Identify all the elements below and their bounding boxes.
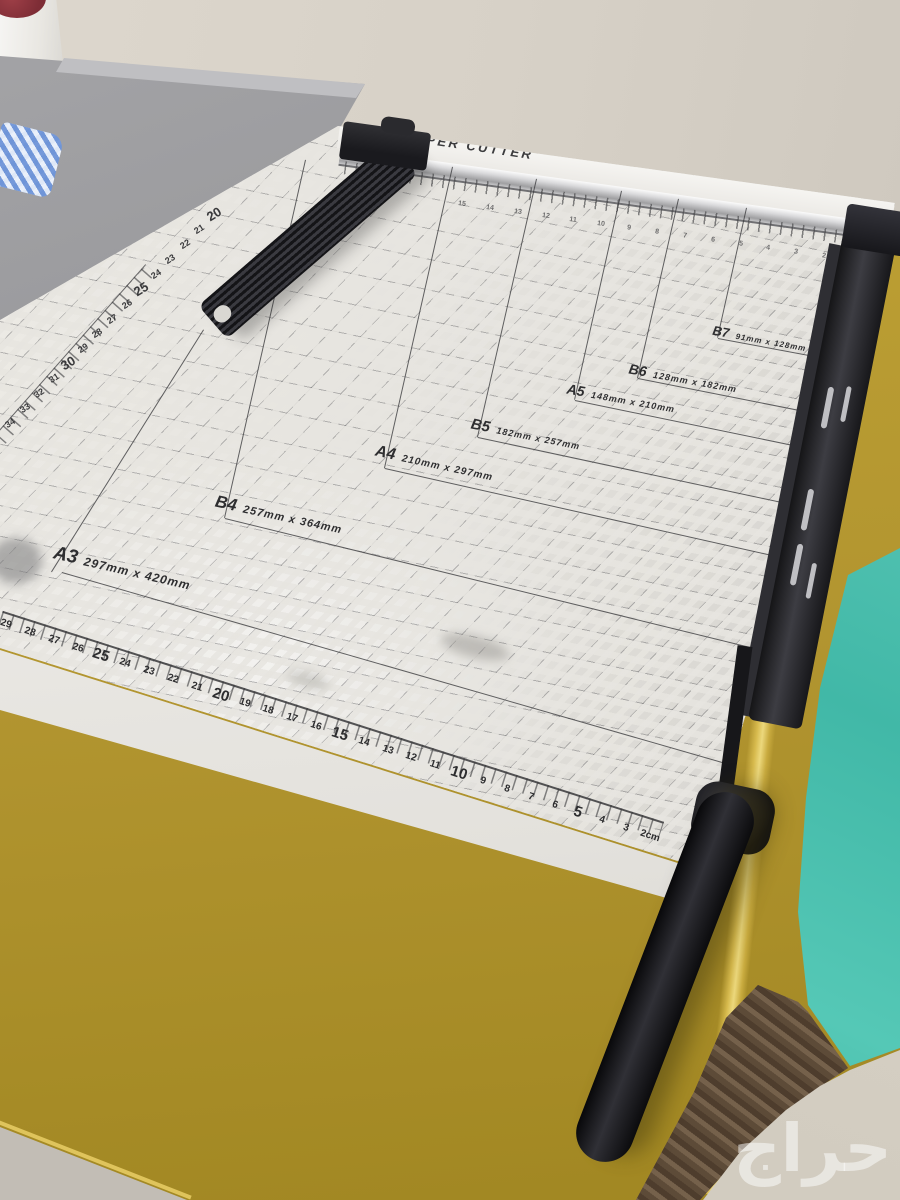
ruler-number-bottom: 21 bbox=[190, 680, 204, 694]
ruler-number-top: 10 bbox=[597, 220, 606, 228]
ruler-number-bottom: 3 bbox=[622, 822, 631, 834]
size-boundary-vline bbox=[477, 179, 537, 437]
ruler-number-left: 22 bbox=[178, 237, 192, 251]
ruler-number-bottom: 27 bbox=[47, 633, 61, 647]
size-dims: 182mm x 257mm bbox=[496, 425, 581, 451]
ruler-number-left: 33 bbox=[18, 401, 32, 415]
size-boundary-vline bbox=[224, 160, 306, 518]
haraj-watermark: حراج bbox=[618, 1116, 892, 1182]
ruler-number-top: 12 bbox=[541, 212, 550, 220]
ruler-number-left: 23 bbox=[163, 252, 177, 266]
ruler-number-bottom: 26 bbox=[71, 641, 85, 655]
ruler-number-bottom: 6 bbox=[550, 798, 559, 810]
ruler-number-top: 11 bbox=[569, 216, 577, 224]
size-dims: 148mm x 210mm bbox=[590, 390, 676, 415]
ruler-number-left: 24 bbox=[149, 267, 163, 281]
ruler-number-bottom: 17 bbox=[285, 711, 299, 725]
rail-slot bbox=[800, 489, 814, 531]
ruler-number-left: 27 bbox=[105, 312, 119, 326]
ruler-number-top: 14 bbox=[485, 204, 494, 212]
ruler-number-bottom: 13 bbox=[381, 743, 395, 757]
rail-slot bbox=[820, 386, 834, 428]
rail-slot bbox=[840, 386, 852, 422]
size-boundary-vline bbox=[384, 167, 453, 468]
size-dims: 128mm x 182mm bbox=[652, 370, 738, 395]
ruler-number-bottom: 5 bbox=[572, 803, 585, 822]
ruler-number-top: 5 bbox=[738, 240, 743, 247]
ruler-number-left: 32 bbox=[32, 386, 46, 400]
ruler-number-bottom: 8 bbox=[503, 783, 512, 795]
size-code: B4 bbox=[214, 492, 239, 515]
paper-size-label: A5148mm x 210mm bbox=[565, 381, 676, 418]
ruler-number-top: 4 bbox=[766, 244, 771, 251]
ruler-number-top: 8 bbox=[655, 228, 660, 235]
ruler-number-left: 34 bbox=[3, 416, 17, 430]
ruler-number-bottom: 15 bbox=[329, 723, 350, 744]
ruler-number-bottom: 29 bbox=[0, 617, 13, 631]
paper-size-label: A3297mm x 420mm bbox=[51, 542, 193, 595]
ruler-number-left: 31 bbox=[47, 371, 61, 385]
size-code: A5 bbox=[566, 381, 586, 400]
ruler-number-left: 26 bbox=[120, 297, 134, 311]
ruler-number-bottom: 12 bbox=[404, 751, 418, 765]
photo-canvas: PAPER CUTTER B791mm x 128mmB6128mm x 182… bbox=[0, 0, 900, 1200]
ruler-number-left: 30 bbox=[58, 353, 78, 373]
paper-size-label: B6128mm x 182mm bbox=[627, 361, 738, 398]
size-code: A4 bbox=[374, 443, 398, 464]
ruler-number-bottom: 16 bbox=[309, 719, 323, 733]
size-boundary-vline bbox=[717, 208, 747, 338]
ruler-number-left: 29 bbox=[76, 341, 90, 355]
ruler-number-top: 6 bbox=[710, 236, 715, 243]
size-code: A3 bbox=[52, 542, 80, 568]
rail-slot bbox=[790, 543, 804, 585]
ruler-number-bottom: 18 bbox=[261, 703, 275, 717]
ruler-number-bottom: 7 bbox=[526, 791, 535, 803]
ruler-number-bottom: 25 bbox=[91, 645, 112, 666]
clamp-bar-notch bbox=[210, 302, 234, 326]
ruler-number-top: 13 bbox=[513, 208, 522, 216]
ruler-number-top: 15 bbox=[458, 200, 467, 208]
rail-slot bbox=[805, 563, 817, 599]
size-code: B6 bbox=[628, 361, 648, 380]
size-boundary-hline bbox=[225, 518, 791, 658]
ruler-number-left: 20 bbox=[204, 204, 224, 224]
size-boundary-vline bbox=[637, 199, 679, 378]
paper-size-label: B5182mm x 257mm bbox=[469, 416, 582, 455]
ruler-number-left: 25 bbox=[131, 278, 151, 298]
ruler-number-bottom: 9 bbox=[479, 775, 488, 787]
size-dims: 257mm x 364mm bbox=[242, 504, 343, 537]
ruler-number-bottom: 14 bbox=[357, 735, 371, 749]
ruler-number-bottom: 11 bbox=[429, 758, 442, 772]
ruler-number-top: 3 bbox=[794, 248, 799, 255]
ruler-number-bottom: 4 bbox=[598, 814, 607, 826]
ruler-number-left: 28 bbox=[91, 327, 105, 341]
size-dims: 91mm x 128mm bbox=[735, 332, 807, 353]
paper-size-label: B791mm x 128mm bbox=[711, 322, 808, 356]
ruler-number-bottom: 24 bbox=[118, 656, 132, 670]
size-code: B7 bbox=[712, 323, 731, 341]
size-boundary-hline bbox=[385, 468, 812, 565]
ruler-number-bottom: 2cm bbox=[639, 828, 661, 845]
ruler-number-left: 21 bbox=[193, 222, 207, 236]
ruler-number-bottom: 19 bbox=[238, 696, 252, 710]
ruler-number-bottom: 22 bbox=[166, 672, 180, 686]
ruler-number-top: 7 bbox=[682, 232, 687, 239]
size-dims: 210mm x 297mm bbox=[401, 453, 494, 483]
size-code: B5 bbox=[469, 416, 491, 436]
ruler-number-bottom: 20 bbox=[210, 684, 231, 705]
ruler-number-bottom: 28 bbox=[23, 625, 37, 639]
size-dims: 297mm x 420mm bbox=[82, 554, 191, 592]
ruler-number-top: 9 bbox=[627, 224, 632, 231]
ruler-number-bottom: 10 bbox=[449, 763, 470, 784]
ruler-number-bottom: 23 bbox=[142, 664, 156, 678]
